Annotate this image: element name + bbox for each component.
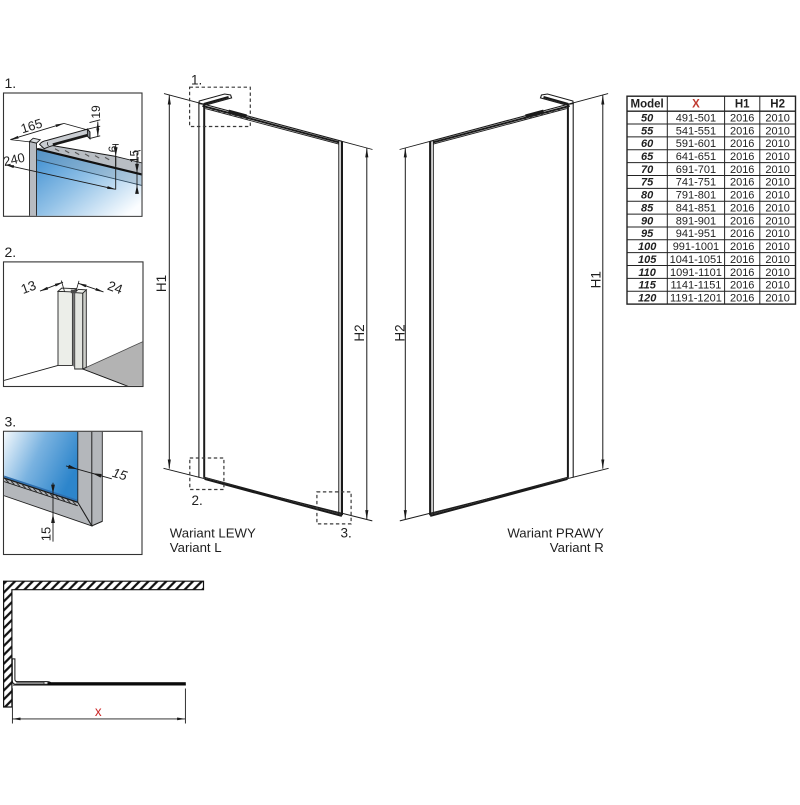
- svg-text:3.: 3.: [5, 414, 17, 430]
- svg-text:2010: 2010: [765, 164, 789, 176]
- svg-text:X: X: [692, 99, 700, 111]
- svg-text:2016: 2016: [730, 190, 754, 202]
- svg-text:65: 65: [641, 151, 654, 163]
- svg-text:841-851: 841-851: [676, 202, 716, 214]
- svg-text:2016: 2016: [730, 241, 754, 253]
- svg-text:3.: 3.: [341, 526, 352, 541]
- svg-text:Wariant LEWY: Wariant LEWY: [170, 525, 256, 540]
- svg-text:2010: 2010: [765, 254, 789, 266]
- svg-text:80: 80: [641, 190, 654, 202]
- svg-text:2.: 2.: [5, 244, 17, 260]
- svg-text:75: 75: [641, 177, 654, 189]
- svg-text:741-751: 741-751: [676, 177, 716, 189]
- svg-text:x: x: [95, 704, 102, 719]
- svg-text:2016: 2016: [730, 164, 754, 176]
- svg-text:H1: H1: [588, 271, 603, 288]
- svg-text:2010: 2010: [765, 125, 789, 137]
- svg-text:Model: Model: [631, 99, 664, 111]
- svg-text:H2: H2: [352, 324, 367, 341]
- svg-text:H1: H1: [735, 99, 750, 111]
- svg-text:2016: 2016: [730, 254, 754, 266]
- svg-text:941-951: 941-951: [676, 228, 716, 240]
- svg-text:2016: 2016: [730, 177, 754, 189]
- svg-text:1191-1201: 1191-1201: [670, 292, 722, 304]
- svg-text:2016: 2016: [730, 138, 754, 150]
- svg-text:2010: 2010: [765, 215, 789, 227]
- svg-text:100: 100: [638, 241, 657, 253]
- svg-text:2010: 2010: [765, 151, 789, 163]
- svg-text:641-651: 641-651: [676, 151, 716, 163]
- svg-text:1141-1151: 1141-1151: [670, 280, 721, 292]
- svg-text:70: 70: [641, 164, 654, 176]
- svg-text:6: 6: [106, 145, 120, 152]
- svg-text:2010: 2010: [765, 177, 789, 189]
- svg-text:110: 110: [638, 267, 656, 279]
- svg-text:1041-1051: 1041-1051: [670, 254, 723, 266]
- svg-text:2010: 2010: [765, 190, 789, 202]
- svg-text:991-1001: 991-1001: [673, 241, 720, 253]
- svg-text:H1: H1: [154, 275, 169, 292]
- svg-text:691-701: 691-701: [676, 164, 716, 176]
- svg-text:491-501: 491-501: [676, 112, 716, 124]
- svg-text:95: 95: [641, 228, 654, 240]
- svg-text:H2: H2: [393, 324, 408, 341]
- svg-text:2010: 2010: [765, 280, 789, 292]
- svg-text:90: 90: [641, 215, 654, 227]
- svg-text:2016: 2016: [730, 280, 754, 292]
- svg-text:1.: 1.: [191, 73, 202, 88]
- svg-text:Variant L: Variant L: [170, 540, 222, 555]
- svg-text:2010: 2010: [765, 228, 789, 240]
- svg-text:2010: 2010: [765, 267, 789, 279]
- svg-text:791-801: 791-801: [676, 190, 716, 202]
- svg-text:2016: 2016: [730, 202, 754, 214]
- svg-text:2016: 2016: [730, 112, 754, 124]
- svg-text:60: 60: [641, 138, 654, 150]
- svg-text:2016: 2016: [730, 215, 754, 227]
- svg-text:591-601: 591-601: [676, 138, 716, 150]
- svg-text:541-551: 541-551: [676, 125, 716, 137]
- svg-text:85: 85: [641, 202, 654, 214]
- svg-text:115: 115: [638, 280, 656, 292]
- svg-text:2016: 2016: [730, 151, 754, 163]
- svg-text:19: 19: [89, 105, 103, 119]
- svg-text:2016: 2016: [730, 125, 754, 137]
- svg-text:15: 15: [38, 527, 53, 541]
- svg-text:1.: 1.: [5, 75, 17, 91]
- svg-text:2.: 2.: [192, 493, 203, 508]
- svg-text:Variant R: Variant R: [550, 540, 604, 555]
- svg-text:105: 105: [638, 254, 657, 266]
- svg-text:2010: 2010: [765, 292, 789, 304]
- svg-text:2016: 2016: [730, 292, 754, 304]
- svg-text:2010: 2010: [765, 138, 789, 150]
- svg-text:120: 120: [638, 292, 657, 304]
- svg-text:1091-1101: 1091-1101: [670, 267, 722, 279]
- svg-text:2016: 2016: [730, 267, 754, 279]
- svg-text:2010: 2010: [765, 112, 789, 124]
- svg-text:2010: 2010: [765, 202, 789, 214]
- svg-text:891-901: 891-901: [676, 215, 716, 227]
- svg-text:2010: 2010: [765, 241, 789, 253]
- svg-text:H2: H2: [770, 99, 785, 111]
- svg-text:55: 55: [641, 125, 654, 137]
- svg-text:50: 50: [641, 112, 654, 124]
- svg-text:Wariant PRAWY: Wariant PRAWY: [507, 525, 604, 540]
- svg-text:2016: 2016: [730, 228, 754, 240]
